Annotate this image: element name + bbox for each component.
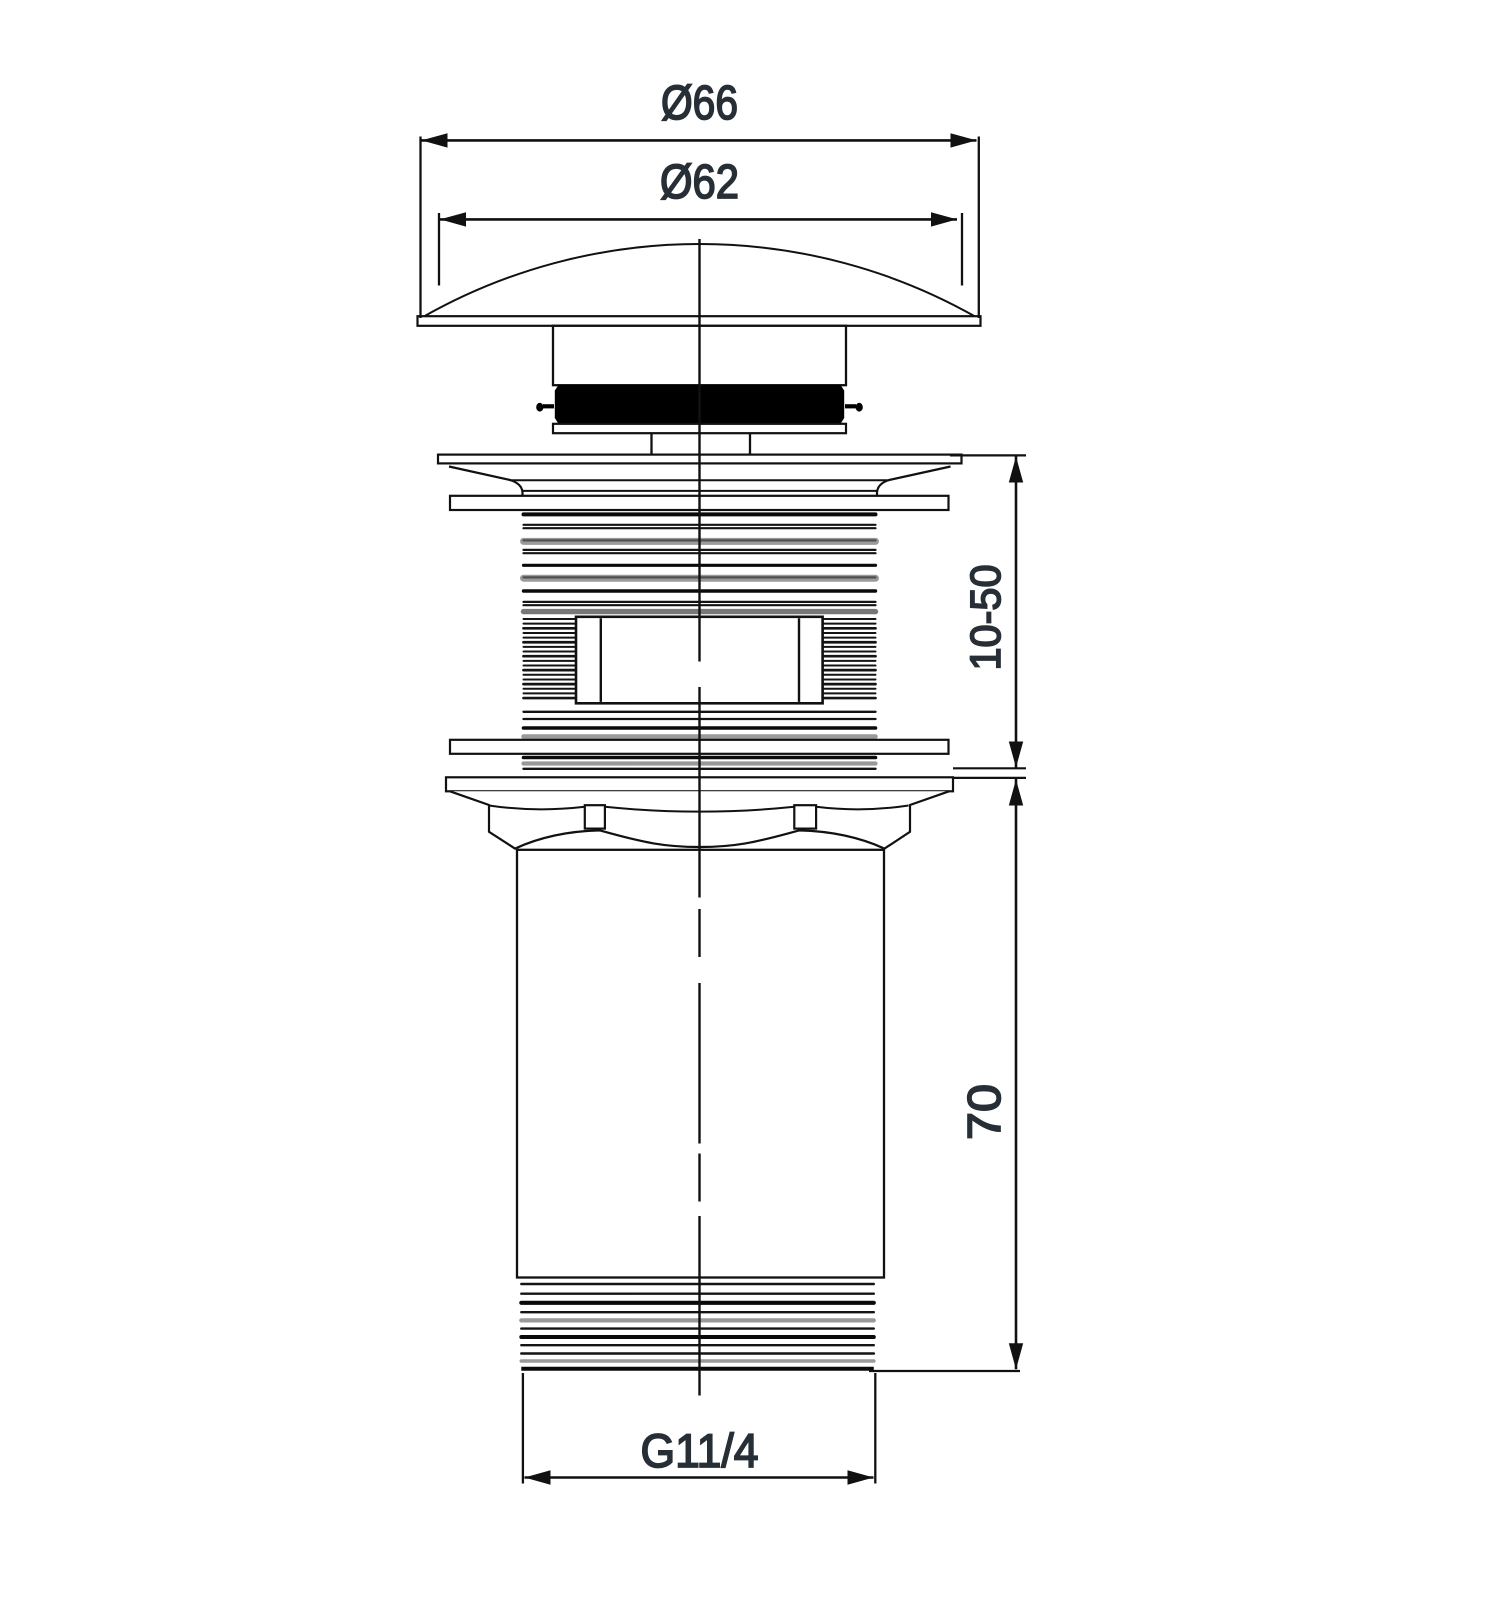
svg-text:Ø66: Ø66 bbox=[661, 77, 738, 130]
svg-text:G11/4: G11/4 bbox=[641, 1424, 759, 1477]
svg-text:10-50: 10-50 bbox=[962, 565, 1010, 671]
svg-text:Ø62: Ø62 bbox=[660, 156, 739, 209]
svg-text:70: 70 bbox=[958, 1084, 1010, 1140]
